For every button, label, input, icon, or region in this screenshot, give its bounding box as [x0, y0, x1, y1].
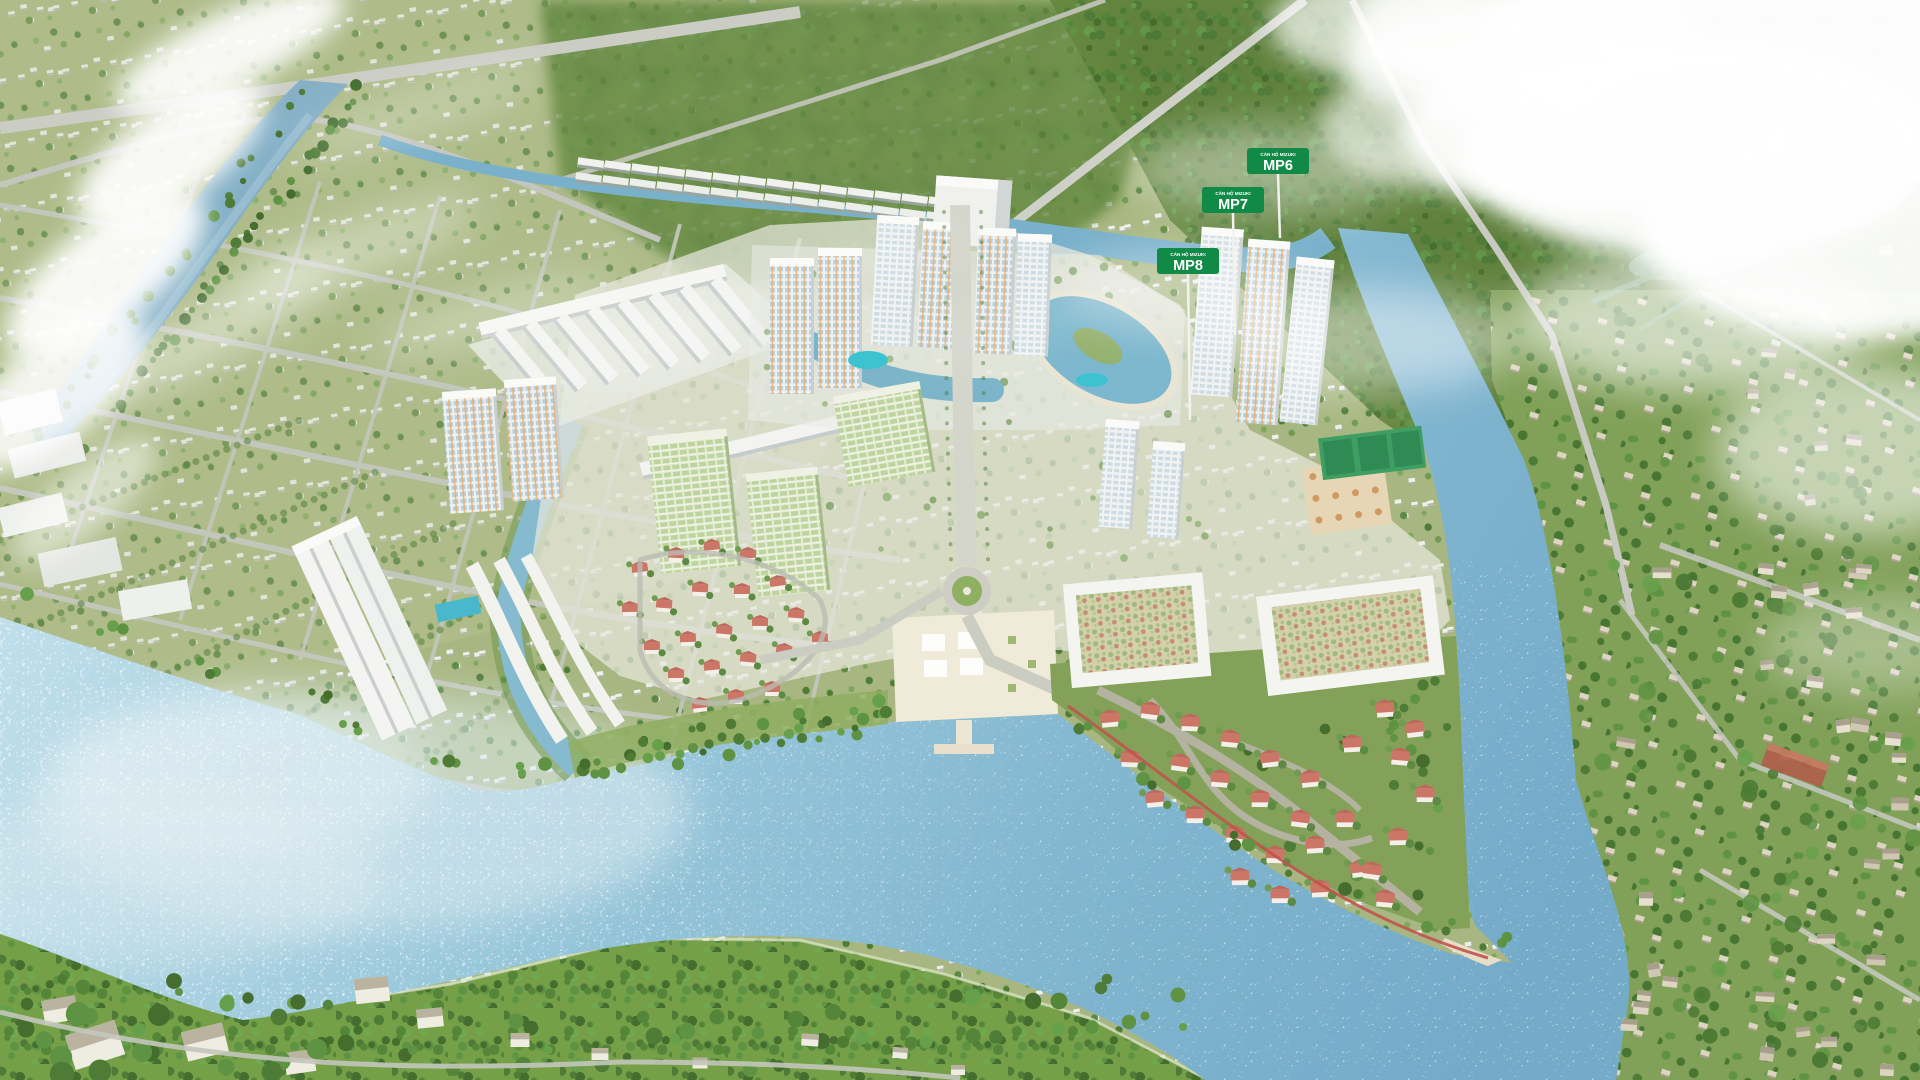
- svg-text:MP8: MP8: [1173, 258, 1203, 274]
- svg-text:MP6: MP6: [1263, 158, 1293, 174]
- svg-text:MP7: MP7: [1218, 197, 1248, 213]
- svg-text:CĂN HỘ MIZUKI: CĂN HỘ MIZUKI: [1260, 150, 1295, 157]
- svg-text:CĂN HỘ MIZUKI: CĂN HỘ MIZUKI: [1170, 250, 1205, 257]
- svg-text:CĂN HỘ MIZUKI: CĂN HỘ MIZUKI: [1215, 189, 1250, 196]
